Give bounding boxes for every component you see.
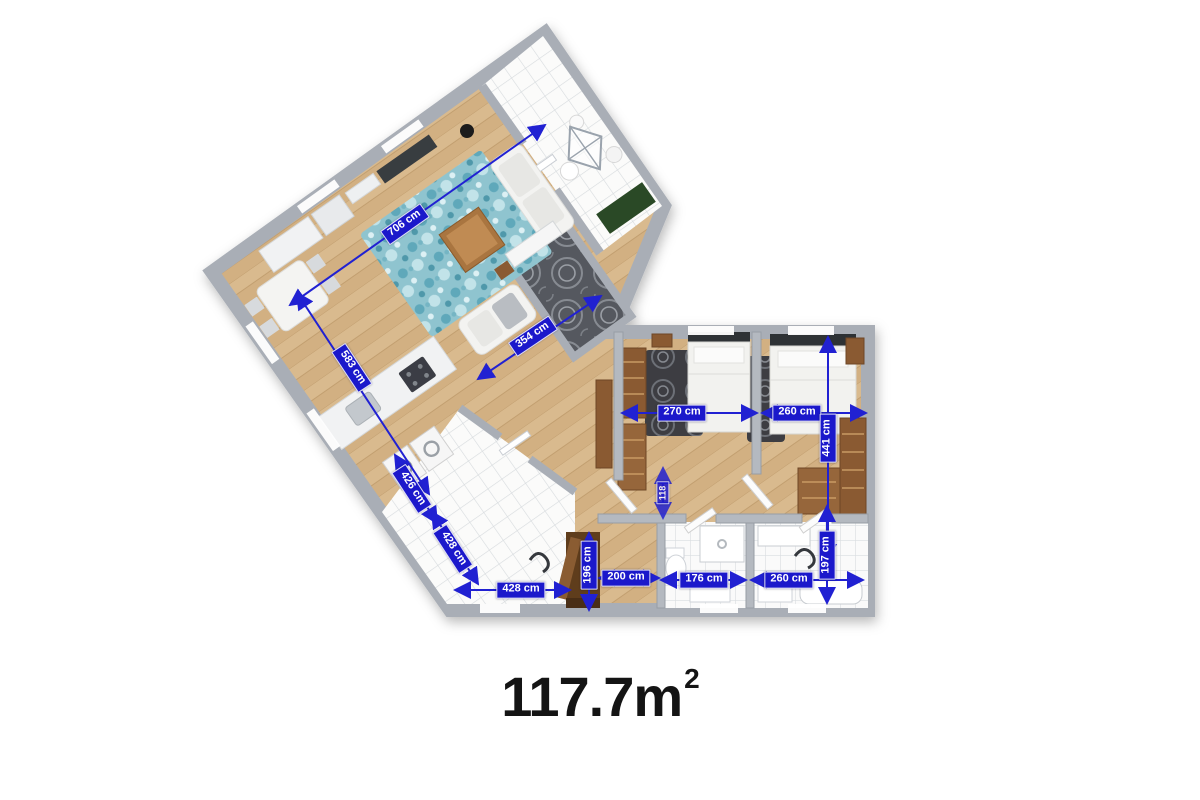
total-area-superscript: 2 (684, 663, 699, 694)
dimension-label-176: 176 cm (679, 572, 728, 589)
dimension-label-260a: 260 cm (772, 405, 821, 422)
dimension-label-197: 197 cm (819, 530, 836, 579)
dimension-label-260b: 260 cm (764, 572, 813, 589)
total-area-value: 117.7m (501, 665, 682, 728)
dimension-label-118: 118 (656, 482, 669, 505)
dimension-label-441: 441 cm (820, 413, 837, 462)
dimension-label-200: 200 cm (601, 570, 650, 587)
dimension-label-196: 196 cm (581, 540, 598, 589)
floor-plan-canvas: 706 cm 583 cm 354 cm 270 cm 260 cm 441 c… (0, 0, 1200, 800)
dimension-label-270: 270 cm (657, 405, 706, 422)
total-area-label: 117.7m2 (501, 663, 698, 729)
ceiling-lamp (460, 124, 474, 138)
dimension-label-428b: 428 cm (496, 582, 545, 599)
